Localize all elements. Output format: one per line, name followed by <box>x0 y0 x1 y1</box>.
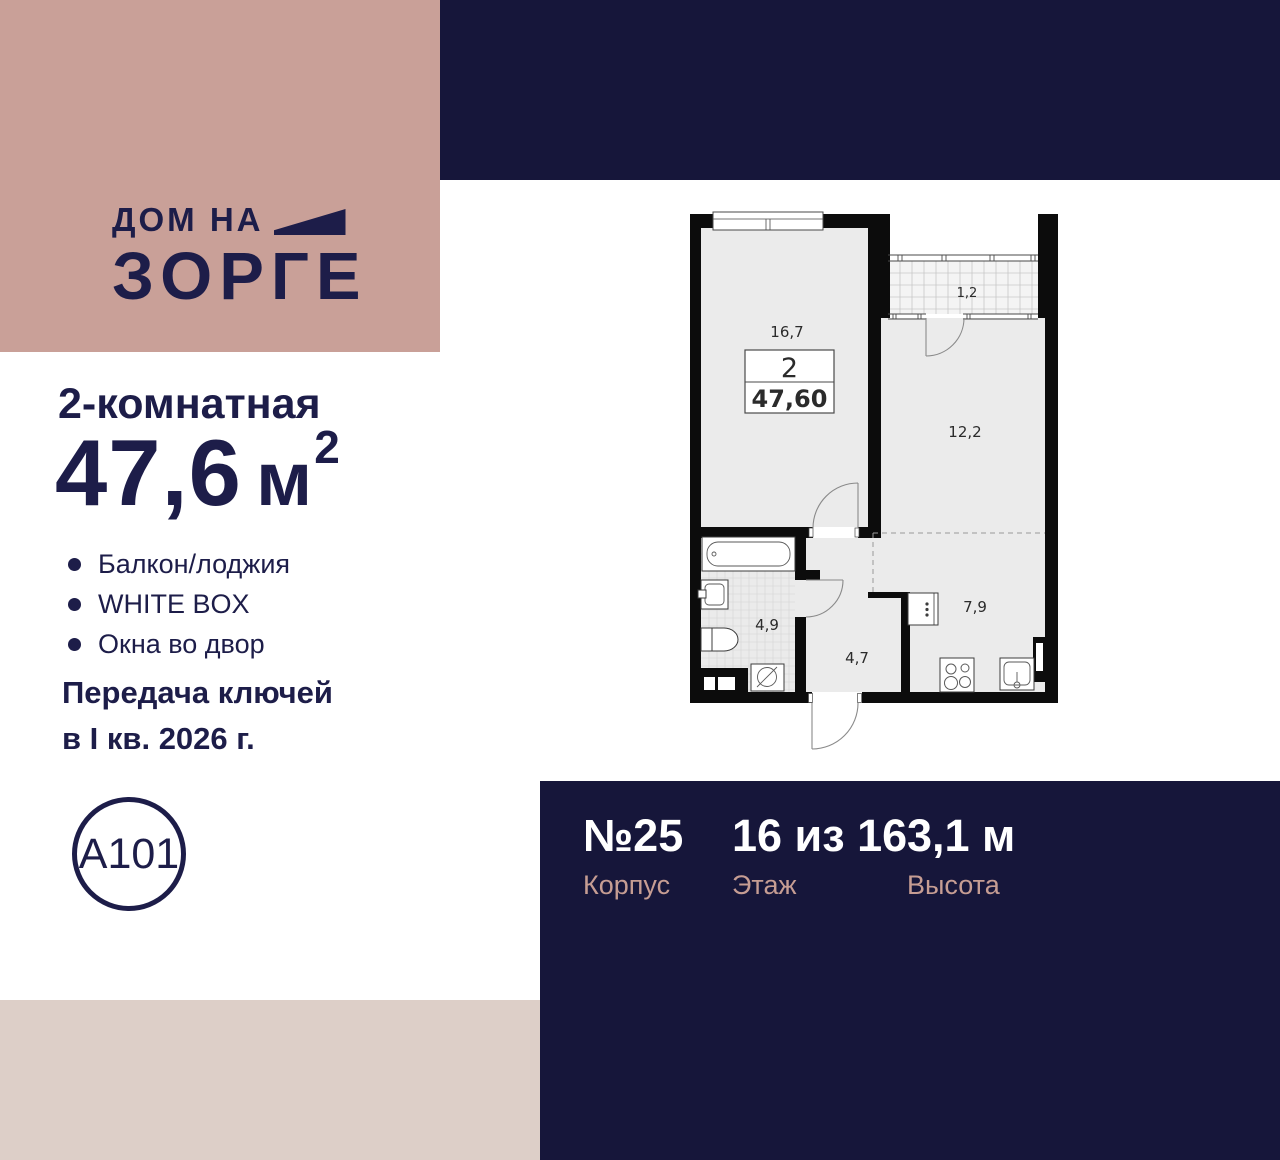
feature-item-whitebox: WHITE BOX <box>68 584 290 624</box>
balcony-area-label: 1,2 <box>957 286 978 301</box>
kitchen-cabinet <box>908 593 938 625</box>
handover-line2: в I кв. 2026 г. <box>62 716 333 762</box>
handover-line1: Передача ключей <box>62 670 333 716</box>
vent-shaft-opening <box>1036 643 1043 671</box>
bottom-beige-block <box>0 1000 540 1160</box>
listing-area: 47,6м2 <box>55 426 338 520</box>
specs-panel: №25 Корпус 16 из 16 Этаж 3,1 м Высота <box>540 781 1280 1160</box>
feature-label: WHITE BOX <box>98 589 250 620</box>
feature-list: Балкон/лоджия WHITE BOX Окна во двор <box>68 544 290 664</box>
duct-opening <box>704 677 715 690</box>
spec-floor: 16 из 16 Этаж <box>732 809 907 901</box>
plan-info-badge: 2 47,60 <box>745 350 834 413</box>
spec-building-value: №25 <box>583 809 683 863</box>
badge-total-area: 47,60 <box>752 385 828 413</box>
spec-height: 3,1 м Высота <box>907 809 1015 901</box>
top-navy-block <box>440 0 1280 180</box>
logo-top-row: ДОМ НА <box>112 203 372 236</box>
spec-height-value: 3,1 м <box>907 809 1015 863</box>
spec-floor-value: 16 из 16 <box>732 809 907 863</box>
feature-item-balcony: Балкон/лоджия <box>68 544 290 584</box>
feature-label: Балкон/лоджия <box>98 549 290 580</box>
bullet-icon <box>68 558 81 571</box>
floorplan-diagram: 16,7 1,2 12,2 4,9 4,7 7,9 2 47,60 <box>688 205 1063 761</box>
bedroom-area-label: 16,7 <box>770 323 803 341</box>
spec-height-label: Высота <box>907 870 1015 901</box>
bathroom-area-label: 4,9 <box>755 616 779 634</box>
living-area-label: 12,2 <box>948 423 981 441</box>
listing-card: ДОМ НА ЗОРГЕ 2-комнатная 47,6м2 Балкон/л… <box>0 0 1280 1160</box>
bullet-icon <box>68 598 81 611</box>
entry-door <box>812 703 858 749</box>
developer-a101-logo: A101 <box>72 797 186 911</box>
toilet-tank <box>701 628 712 651</box>
bullet-icon <box>68 638 81 651</box>
duct-opening <box>718 677 735 690</box>
balcony-window <box>888 255 1038 261</box>
spec-building-label: Корпус <box>583 870 683 901</box>
feature-label: Окна во двор <box>98 629 265 660</box>
dom-na-zorge-logo: ДОМ НА ЗОРГЕ <box>112 203 372 310</box>
feature-item-windows: Окна во двор <box>68 624 290 664</box>
spec-floor-label: Этаж <box>732 870 907 901</box>
developer-logo-text: A101 <box>79 830 179 879</box>
badge-rooms-count: 2 <box>781 353 798 384</box>
kitchen-area-label: 7,9 <box>963 598 987 616</box>
area-value: 47,6 <box>55 420 242 525</box>
stove <box>940 658 974 692</box>
logo-text-zorge: ЗОРГЕ <box>112 243 372 310</box>
bedroom-window <box>713 212 823 230</box>
hallway-area-label: 4,7 <box>845 649 869 667</box>
washbasin-tap <box>698 590 706 598</box>
logo-text-dom-na: ДОМ НА <box>112 203 264 236</box>
area-superscript: 2 <box>314 421 340 473</box>
area-unit: м <box>256 437 312 522</box>
toilet-bowl <box>712 628 738 651</box>
spec-building: №25 Корпус <box>583 809 683 901</box>
washing-machine <box>751 664 784 691</box>
handover-info: Передача ключей в I кв. 2026 г. <box>62 670 333 761</box>
flag-wedge-icon <box>274 209 346 235</box>
